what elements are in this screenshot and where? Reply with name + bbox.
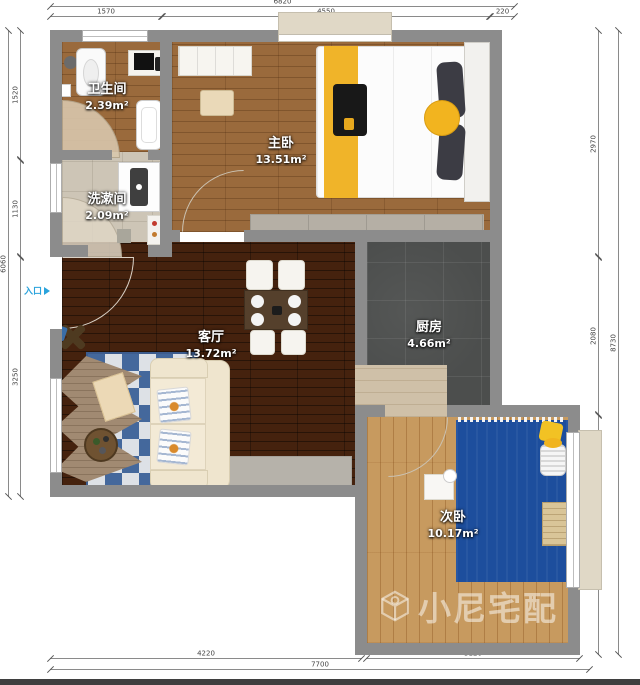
sofa-pillow-2 <box>156 428 191 465</box>
zigzag-coffee-table <box>56 356 142 482</box>
wall-second-top-b <box>447 405 580 417</box>
striped-lamp <box>540 444 566 476</box>
dim-right-mid: 2080 <box>598 257 599 415</box>
lamp-cap <box>544 438 562 448</box>
tv-floor-mat <box>228 456 352 486</box>
floor-plan-canvas: 入口 卫生间 2.39m² 洗漱间 2.09m² 主卧 13.51m² 厨房 4… <box>0 0 640 685</box>
entrance-arrow-icon <box>44 287 50 295</box>
master-dresser <box>250 214 484 230</box>
wall-washroom-bottom-a <box>50 245 88 257</box>
dining-chair-1 <box>246 260 273 290</box>
second-bay-window <box>578 430 602 590</box>
wall-master-bottom-a <box>172 230 180 242</box>
dining-table <box>244 290 308 330</box>
table-centerpiece <box>272 306 282 315</box>
dim-left-total: 6060 <box>8 30 9 497</box>
wall-second-right-a <box>568 405 580 432</box>
bathroom-window <box>82 30 148 42</box>
wall-master-bottom-b <box>244 230 502 242</box>
nightstand-lamp <box>443 469 457 483</box>
sofa-pillow-1 <box>156 386 191 423</box>
second-window-sill <box>566 432 580 588</box>
heater-dot2 <box>152 232 157 237</box>
plate <box>288 313 301 326</box>
entrance-label: 入口 <box>24 284 50 297</box>
dining-chair-2 <box>278 260 305 290</box>
tray-dot <box>93 438 100 445</box>
shower-tray <box>136 100 162 150</box>
dim-bottom-right: 3120 <box>366 658 580 659</box>
watermark-logo-icon <box>378 589 412 623</box>
wall-washroom-bottom-b <box>148 245 172 257</box>
wall-bathroom-washroom-a <box>62 150 112 160</box>
dim-top-right: 220 <box>490 16 515 17</box>
washing-machine <box>118 162 160 212</box>
tray-item <box>344 118 354 130</box>
bathroom-sink <box>76 48 106 96</box>
wall-bottom-left <box>50 485 362 497</box>
wall-second-left <box>355 405 367 655</box>
dim-left-top: 1520 <box>20 30 21 160</box>
wall-kitchen-living <box>355 242 367 365</box>
washroom-stool <box>117 229 131 243</box>
sink-basin <box>83 59 99 87</box>
bed-tray <box>333 84 367 136</box>
master-wardrobe <box>178 46 252 76</box>
washer-door <box>136 184 142 190</box>
dim-right-top: 2970 <box>598 30 599 257</box>
dim-left-mid: 1130 <box>20 160 21 257</box>
wall-bathroom-washroom-b <box>148 150 162 160</box>
wall-second-right-b <box>568 588 580 655</box>
dim-top-left: 1570 <box>50 16 162 17</box>
washroom-window <box>50 163 62 213</box>
watermark-text: 小尼宅配 <box>418 582 558 630</box>
dim-left-bottom: 3250 <box>20 257 21 497</box>
tray-dot <box>99 447 106 454</box>
second-nightstand <box>424 474 454 500</box>
sofa-armrest-top <box>150 358 208 378</box>
master-bay-window <box>278 12 392 42</box>
wall-second-bottom <box>355 643 580 655</box>
plate <box>288 295 301 308</box>
plate <box>251 295 264 308</box>
dining-chair-3 <box>250 330 275 355</box>
dim-bottom-left: 4220 <box>50 658 362 659</box>
storage-basket <box>542 502 568 546</box>
dim-top-total: 6820 <box>50 6 515 7</box>
wall-right-upper <box>490 30 502 415</box>
bed-round-cushion <box>424 100 460 136</box>
tray-dot <box>103 436 109 442</box>
watermark: 小尼宅配 <box>378 582 558 630</box>
dining-chair-4 <box>281 330 306 355</box>
monitor <box>134 53 154 70</box>
entrance-opening <box>50 257 62 329</box>
bottom-strip <box>0 679 640 685</box>
master-nightstand <box>200 90 234 116</box>
entrance-text: 入口 <box>24 284 42 297</box>
bay-sill <box>279 34 391 41</box>
round-tray <box>84 428 118 462</box>
living-window <box>50 378 62 473</box>
shower-tray-inner <box>141 107 157 143</box>
bed-headboard <box>464 42 490 202</box>
heater-dot <box>152 221 157 226</box>
dim-right-total: 8730 <box>618 30 619 655</box>
plate <box>251 313 264 326</box>
dim-bottom-total: 7700 <box>50 669 590 670</box>
